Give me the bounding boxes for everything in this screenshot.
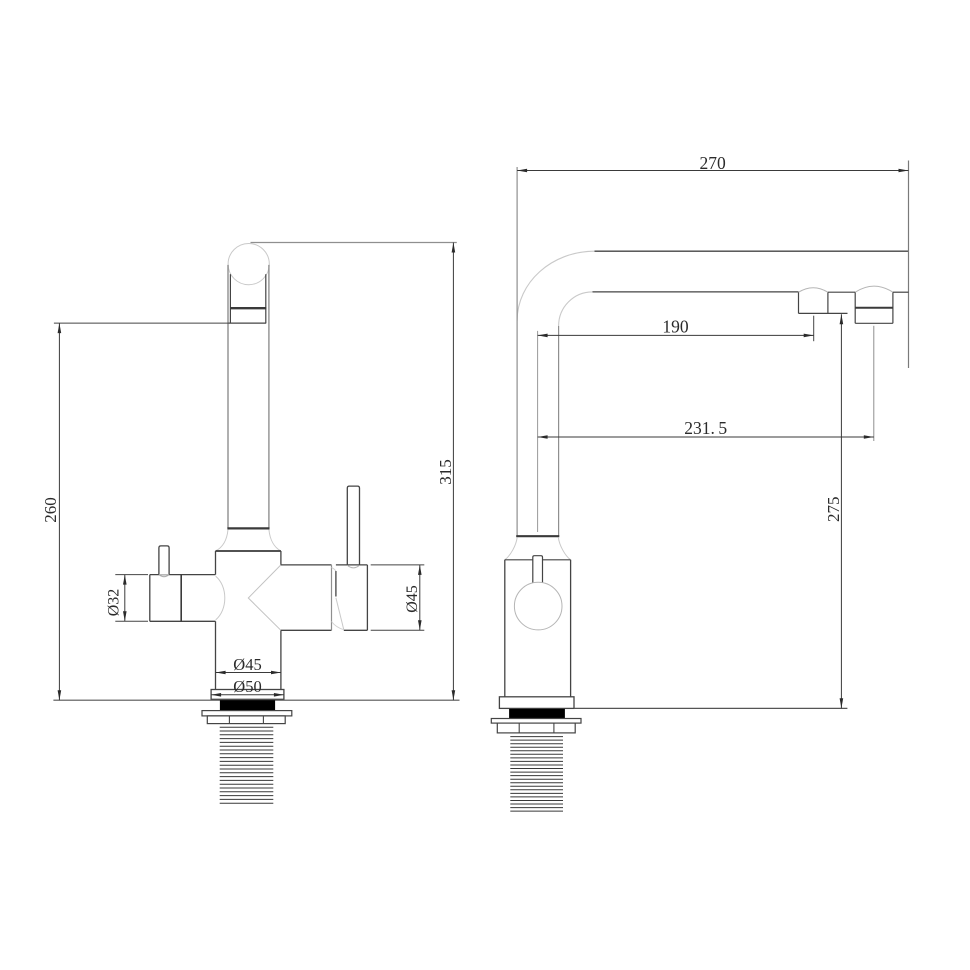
svg-text:270: 270 — [699, 153, 726, 173]
svg-text:Ø45: Ø45 — [404, 585, 421, 613]
svg-text:190: 190 — [662, 317, 689, 337]
svg-text:Ø50: Ø50 — [233, 677, 261, 696]
svg-text:315: 315 — [436, 459, 455, 485]
svg-text:260: 260 — [41, 497, 60, 523]
svg-text:275: 275 — [824, 497, 843, 523]
svg-text:Ø32: Ø32 — [106, 589, 123, 617]
svg-text:Ø45: Ø45 — [233, 655, 261, 674]
svg-text:231. 5: 231. 5 — [684, 418, 727, 438]
